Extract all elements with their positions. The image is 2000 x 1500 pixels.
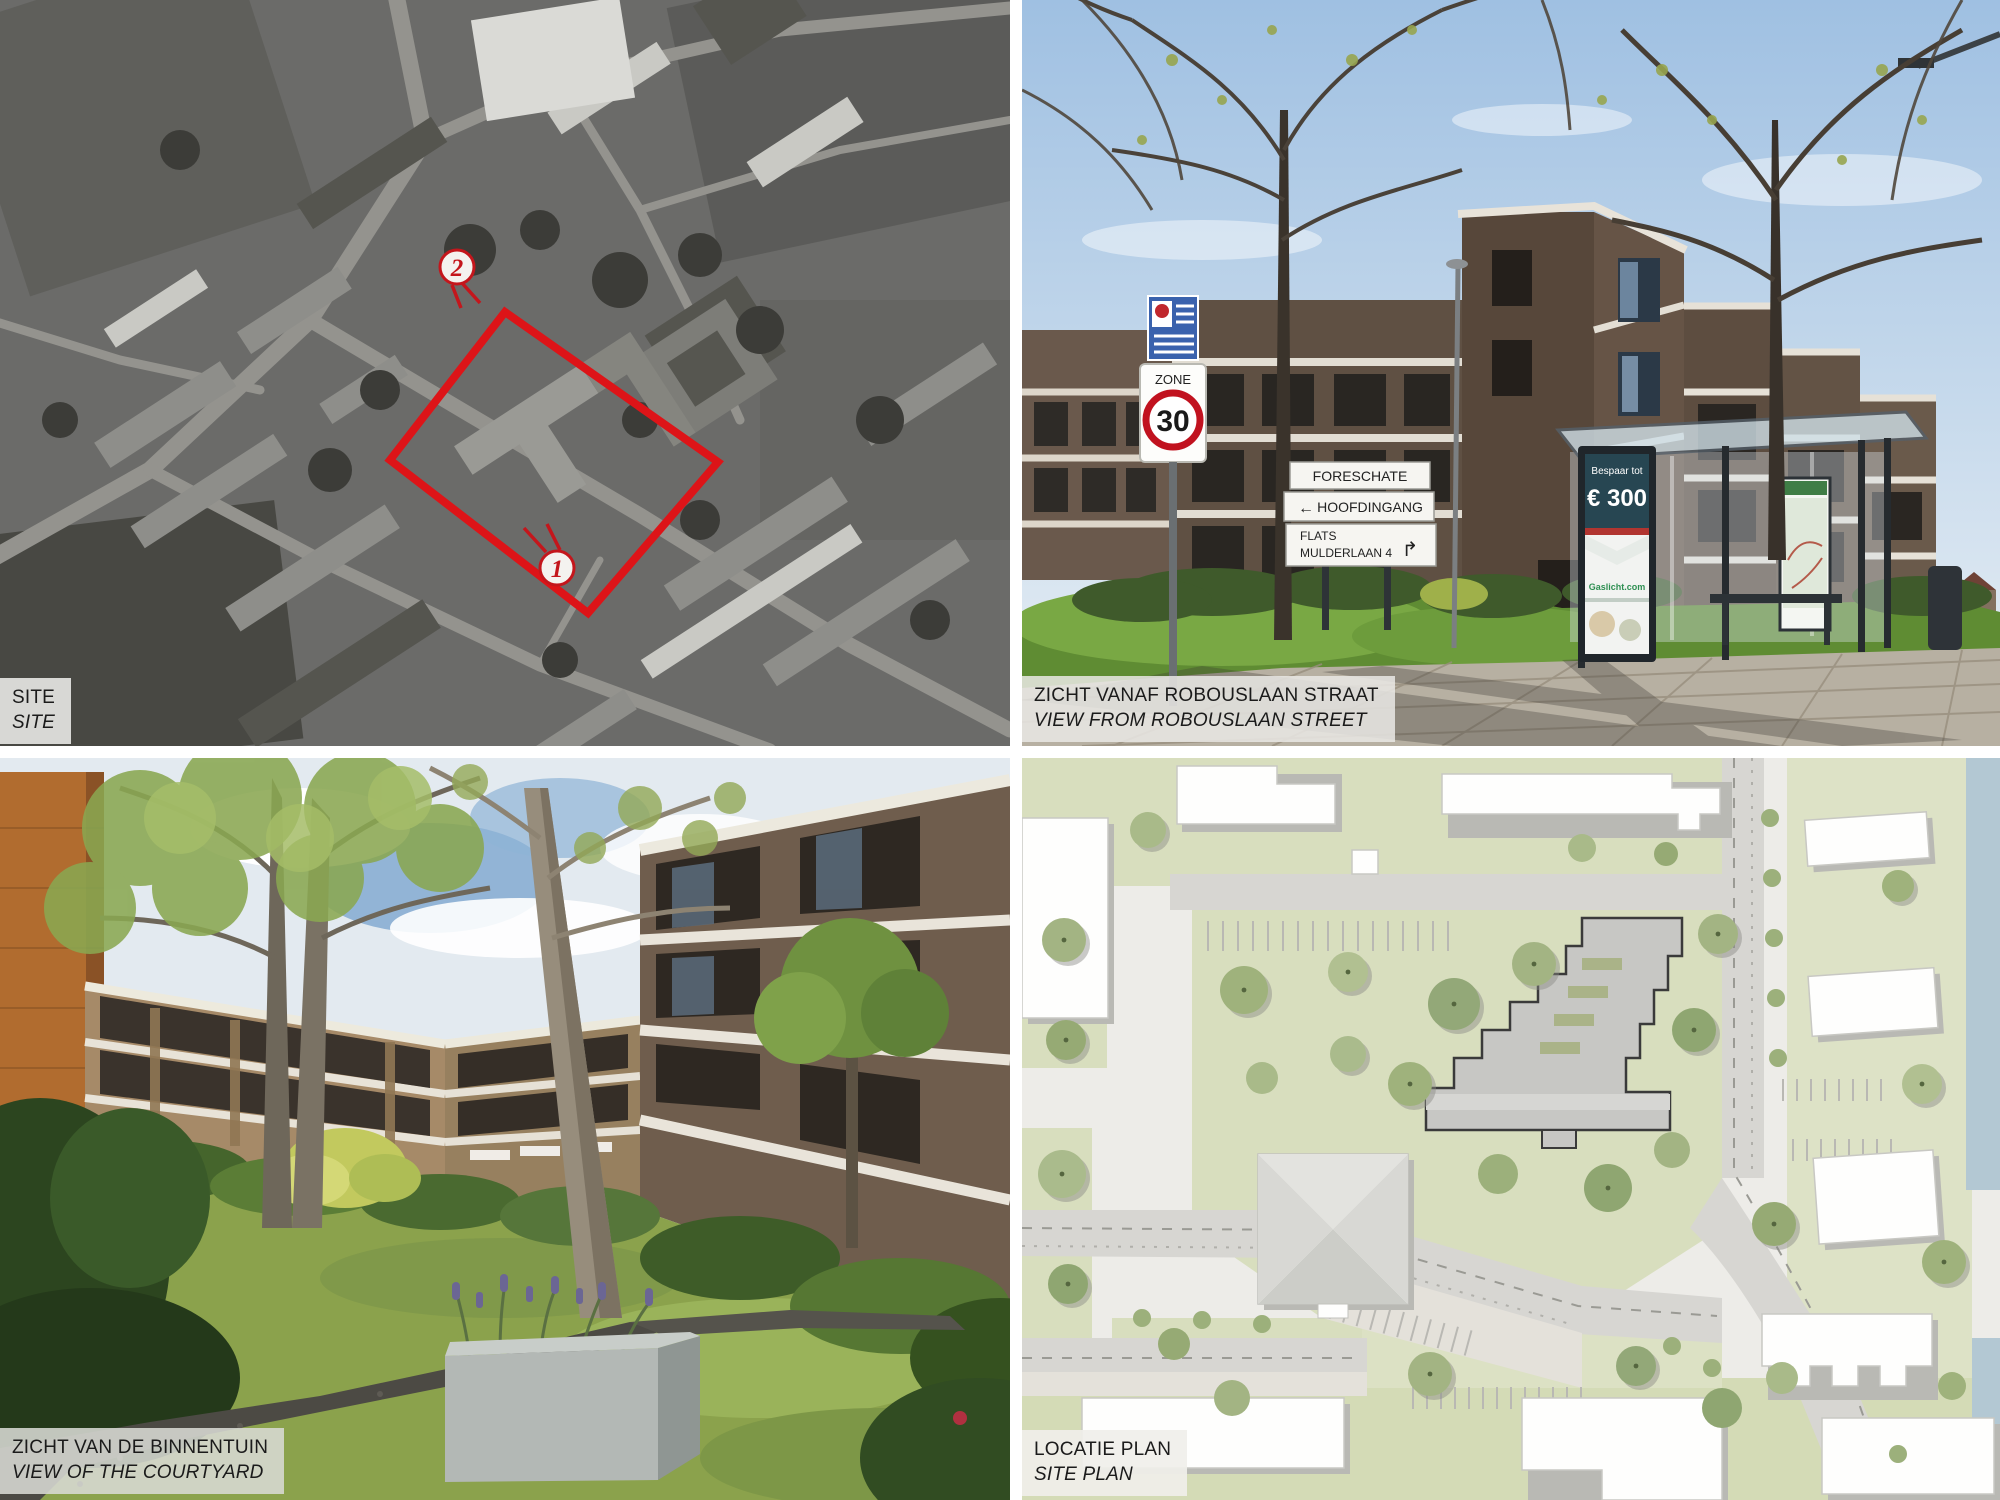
courtyard-illustration <box>0 758 1010 1500</box>
sign-pole <box>1169 462 1177 706</box>
street-panel-label: ZICHT VANAF ROBOUSLAAN STRAAT VIEW FROM … <box>1022 676 1395 742</box>
bus-shelter-bench <box>1710 594 1842 603</box>
site-plan-drawing: LOCATIE PLAN SITE PLAN <box>1022 758 2000 1500</box>
aerial-site-photo: 2 1 SITE SITE <box>0 0 1010 746</box>
zone-30-sign: ZONE 30 <box>1140 364 1206 462</box>
svg-text:1: 1 <box>551 556 564 583</box>
svg-text:FLATS: FLATS <box>1300 529 1336 543</box>
bus-shelter-ad-panel: Bespaar tot € 300 Gaslicht.com <box>1578 446 1656 662</box>
svg-text:↱: ↱ <box>1402 539 1419 561</box>
svg-text:←: ← <box>1298 500 1314 517</box>
svg-text:Gaslicht.com: Gaslicht.com <box>1589 582 1646 592</box>
trash-bin <box>1928 566 1962 650</box>
svg-text:MULDERLAAN 4: MULDERLAAN 4 <box>1300 546 1392 560</box>
aerial-label-nl: SITE <box>12 685 55 710</box>
street-illustration: Bespaar tot € 300 Gaslicht.com <box>1022 0 2000 746</box>
bench-leg <box>1824 603 1830 645</box>
neighbourhood-watch-sign <box>1148 296 1198 360</box>
svg-text:30: 30 <box>1156 405 1189 438</box>
plan-pyramid-roof-building <box>1258 1154 1408 1318</box>
svg-text:Bespaar tot: Bespaar tot <box>1591 466 1642 477</box>
bus-shelter-map-panel <box>1780 478 1830 630</box>
svg-text:FORESCHATE: FORESCHATE <box>1313 468 1408 484</box>
courtyard-label-en: VIEW OF THE COURTYARD <box>12 1460 268 1485</box>
aerial-illustration: 2 1 <box>0 0 1010 746</box>
courtyard-photo: ZICHT VAN DE BINNENTUIN VIEW OF THE COUR… <box>0 758 1010 1500</box>
courtyard-label-nl: ZICHT VAN DE BINNENTUIN <box>12 1435 268 1460</box>
site-plan-illustration <box>1022 758 2000 1500</box>
courtyard-panel-label: ZICHT VAN DE BINNENTUIN VIEW OF THE COUR… <box>0 1428 284 1494</box>
svg-text:2: 2 <box>450 255 464 282</box>
svg-text:HOOFDINGANG: HOOFDINGANG <box>1317 499 1423 515</box>
svg-text:€ 300: € 300 <box>1587 485 1647 512</box>
presentation-sheet: 2 1 SITE SITE <box>0 0 2000 1500</box>
street-label-en: VIEW FROM ROBOUSLAAN STREET <box>1034 708 1379 733</box>
bench-leg <box>1722 603 1728 645</box>
street-view-photo: Bespaar tot € 300 Gaslicht.com <box>1022 0 2000 746</box>
aerial-panel-label: SITE SITE <box>0 678 71 744</box>
siteplan-label-nl: LOCATIE PLAN <box>1034 1437 1171 1462</box>
siteplan-panel-label: LOCATIE PLAN SITE PLAN <box>1022 1430 1187 1496</box>
aerial-label-en: SITE <box>12 710 55 735</box>
street-label-nl: ZICHT VANAF ROBOUSLAAN STRAAT <box>1034 683 1379 708</box>
siteplan-label-en: SITE PLAN <box>1034 1462 1171 1487</box>
svg-text:ZONE: ZONE <box>1155 372 1191 387</box>
